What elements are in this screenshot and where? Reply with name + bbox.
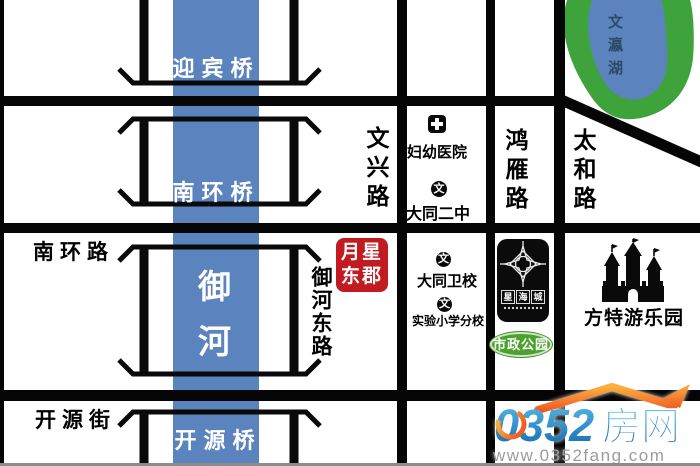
logo-char-3: 城 [531,290,545,304]
watermark-digits: 0352 [494,400,594,451]
kaiyuan-bridge-label: 开源桥 [162,423,274,455]
property-badge: 月星 东郡 [336,238,388,292]
datong-health-school-label: 大同卫校 [416,270,478,291]
datong-no2-school-label: 大同二中 [405,200,471,224]
watermark-url: www.0352fang.com [492,446,665,465]
school-icon: 文 [431,181,447,197]
hongyan-road-label: 鸿雁路 [498,128,532,215]
castle-icon [602,238,664,302]
nanhuan-road-line [0,223,700,233]
taihe-road-label: 太和路 [566,128,600,215]
north-horizontal-road [0,96,565,106]
hospital-cross-icon [428,115,446,133]
nanhuan-bridge-label: 南环桥 [160,175,272,207]
map-canvas: 迎宾桥 南环桥 开源桥 御 河 南环路 开源街 文兴路 鸿雁路 太和路 御河东路… [0,0,700,466]
school-icon: 文 [436,252,451,267]
nanhuan-road-label: 南环路 [33,236,114,266]
wenxing-road-label: 文兴路 [359,126,393,213]
fangte-amusement-label: 方特游乐园 [578,303,690,330]
watermark-cn: 房网 [602,406,680,449]
kaiyuan-street-label: 开源街 [35,404,116,434]
yu-river-label-char1: 御 [198,260,231,308]
compass-emblem-icon [497,239,549,289]
watermark-logo: 0352 房网 www.0352fang.com [490,382,700,466]
logo-tagline-rule [504,307,542,309]
wenying-lake-shape [564,0,694,119]
logo-characters: 星 海 城 [501,290,545,304]
yingbin-bridge-label: 迎宾桥 [160,51,272,83]
property-badge-line2: 东郡 [336,265,388,289]
experimental-primary-label: 实验小学分校 [409,312,487,329]
school-icon: 文 [437,297,452,312]
yuhe-east-road-label: 御河东路 [305,266,335,358]
logo-char-2: 海 [516,290,530,304]
wenying-lake-label: 文瀛湖 [604,14,625,83]
property-badge-line1: 月星 [336,241,388,265]
yu-river-label-char2: 河 [198,315,231,363]
developer-logo-box: 星 海 城 [497,239,549,322]
municipal-park-badge: 市政公园 [490,332,552,357]
hospital-label: 妇幼医院 [405,141,469,162]
wenxing-road-line [397,0,407,466]
logo-char-1: 星 [501,290,515,304]
